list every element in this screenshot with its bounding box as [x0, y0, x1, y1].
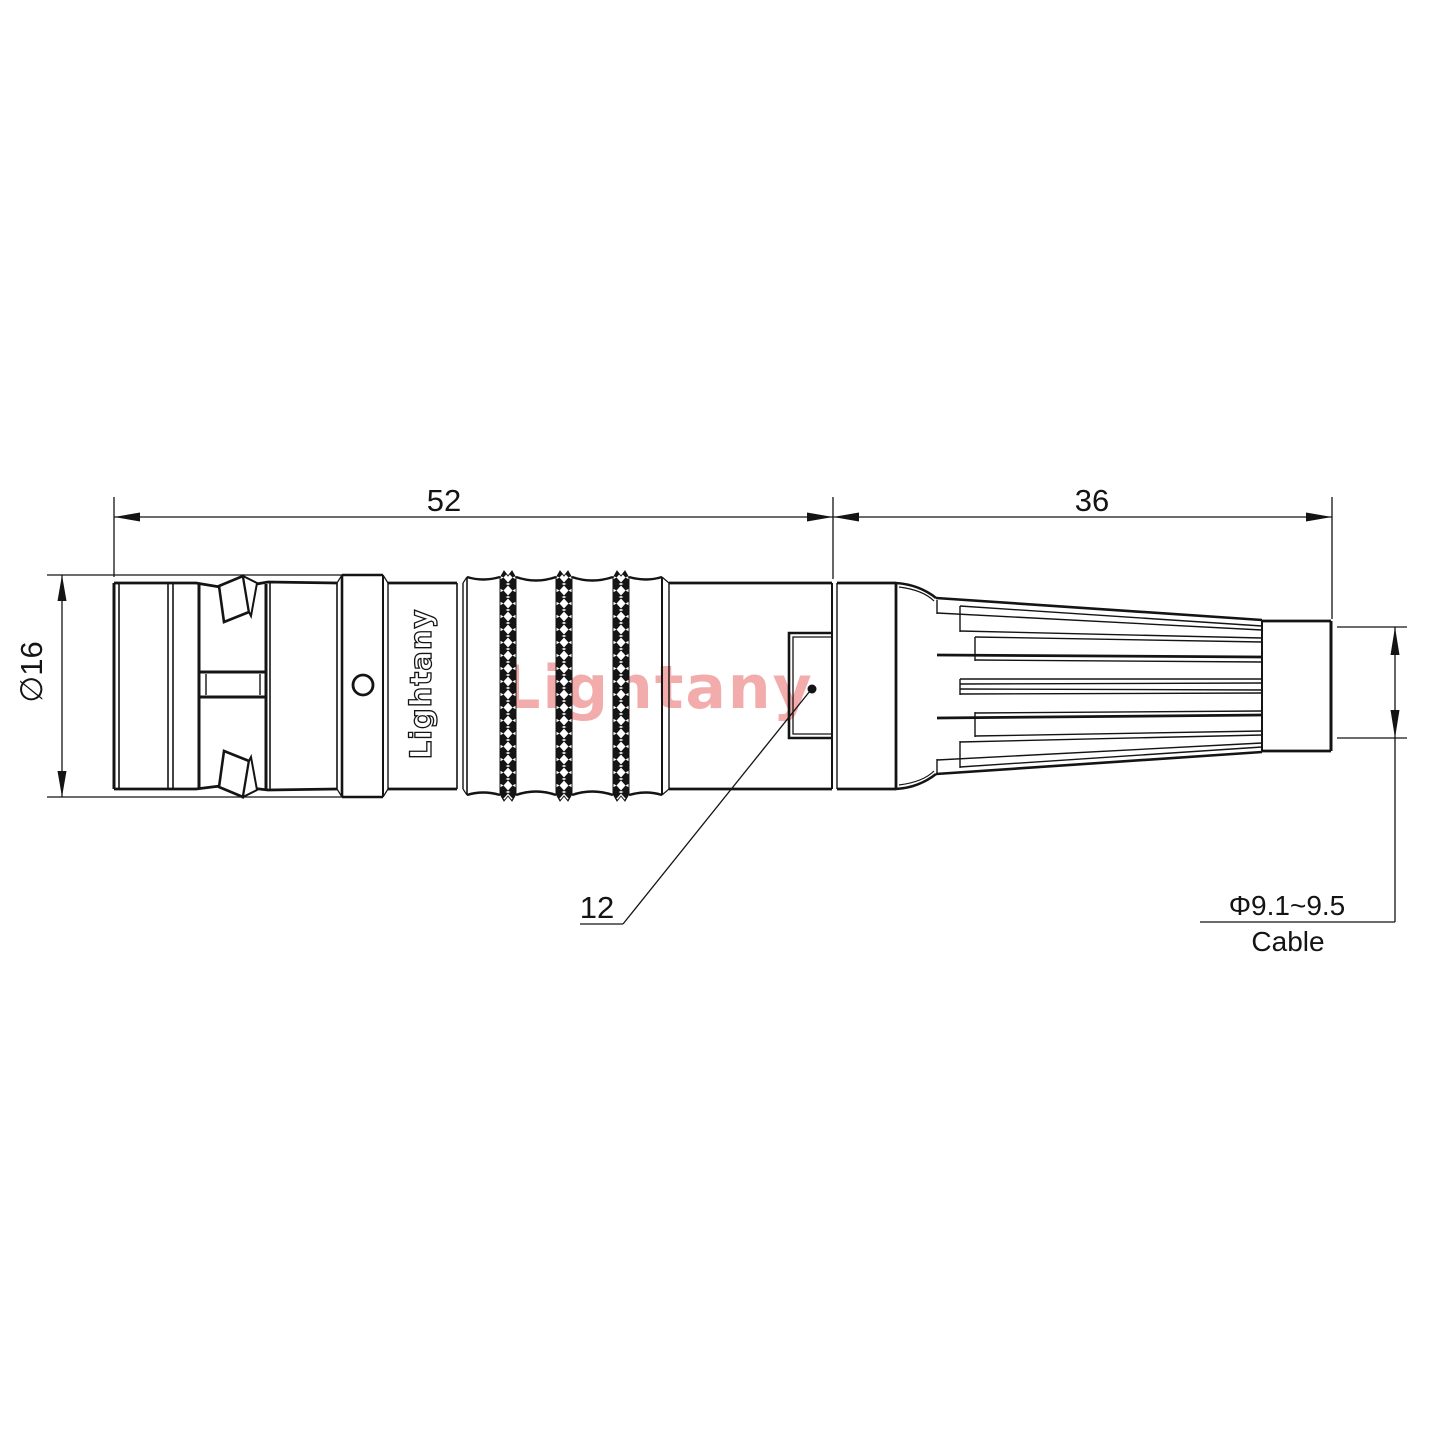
- boot-rib-line: [960, 693, 1262, 694]
- outline-bottom-right: [251, 788, 337, 790]
- knurl-band-1: [500, 571, 516, 801]
- knurl-band-3: [613, 571, 629, 801]
- dimension-12-label: 12: [580, 890, 614, 925]
- dimension-52-label: 52: [427, 483, 461, 518]
- watermark-text: Lightany: [502, 653, 813, 723]
- diameter-16-label: ∅16: [14, 641, 49, 703]
- leader-dot-icon: [808, 685, 817, 694]
- brand-text: Lightany: [404, 609, 438, 760]
- cable-diameter-label: Φ9.1~9.5: [1229, 890, 1346, 921]
- boot-rib-line: [960, 683, 1262, 684]
- boot-rib-line: [960, 689, 1262, 690]
- vent-hole-icon: [353, 675, 373, 695]
- dimension-36-label: 36: [1075, 483, 1109, 518]
- connector-technical-drawing: Lightany 52 36 ∅16 Φ9.1~9.5 Cable: [0, 0, 1440, 1440]
- boot-rib-line-thick: [937, 655, 1262, 657]
- knurl-band-2: [556, 571, 572, 801]
- cable-label: Cable: [1251, 926, 1324, 957]
